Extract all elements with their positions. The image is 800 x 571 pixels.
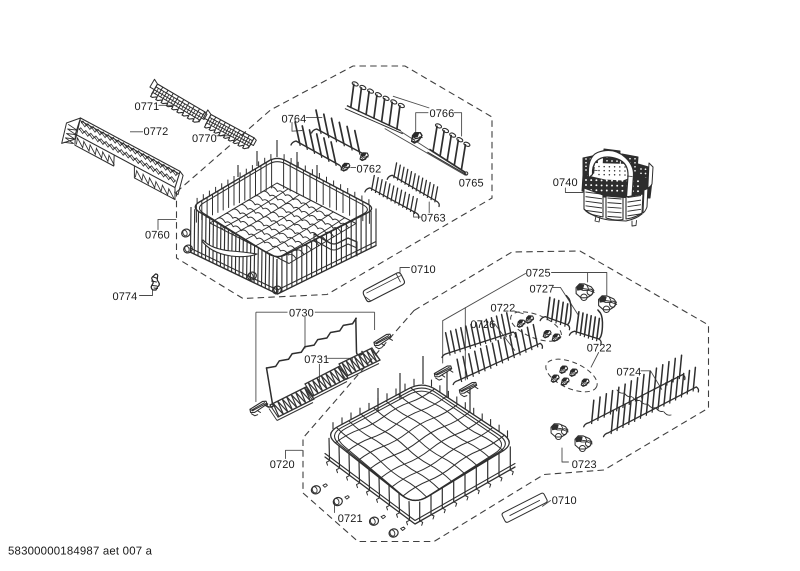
svg-text:0721: 0721 [338, 513, 363, 525]
svg-text:0764: 0764 [282, 114, 307, 126]
svg-text:0766: 0766 [430, 108, 455, 120]
svg-text:0720: 0720 [270, 459, 295, 471]
svg-text:0771: 0771 [135, 101, 160, 113]
svg-text:0722: 0722 [491, 303, 516, 315]
svg-text:0722: 0722 [587, 342, 612, 354]
svg-text:0774: 0774 [113, 291, 138, 303]
svg-text:0770: 0770 [192, 133, 217, 145]
svg-text:0723: 0723 [572, 459, 597, 471]
svg-text:0730: 0730 [289, 307, 314, 319]
svg-text:0725: 0725 [526, 268, 551, 280]
svg-text:0710: 0710 [411, 264, 436, 276]
svg-text:0724: 0724 [617, 367, 642, 379]
svg-text:0760: 0760 [145, 230, 170, 242]
svg-text:0763: 0763 [421, 213, 446, 225]
svg-text:0772: 0772 [144, 126, 169, 138]
svg-text:0727: 0727 [530, 283, 555, 295]
svg-text:0710: 0710 [552, 495, 577, 507]
svg-text:0731: 0731 [304, 354, 329, 366]
svg-text:0740: 0740 [553, 177, 578, 189]
svg-text:58300000184987 aet 007 a: 58300000184987 aet 007 a [8, 546, 153, 558]
svg-text:0765: 0765 [459, 178, 484, 190]
svg-text:0762: 0762 [357, 164, 382, 176]
